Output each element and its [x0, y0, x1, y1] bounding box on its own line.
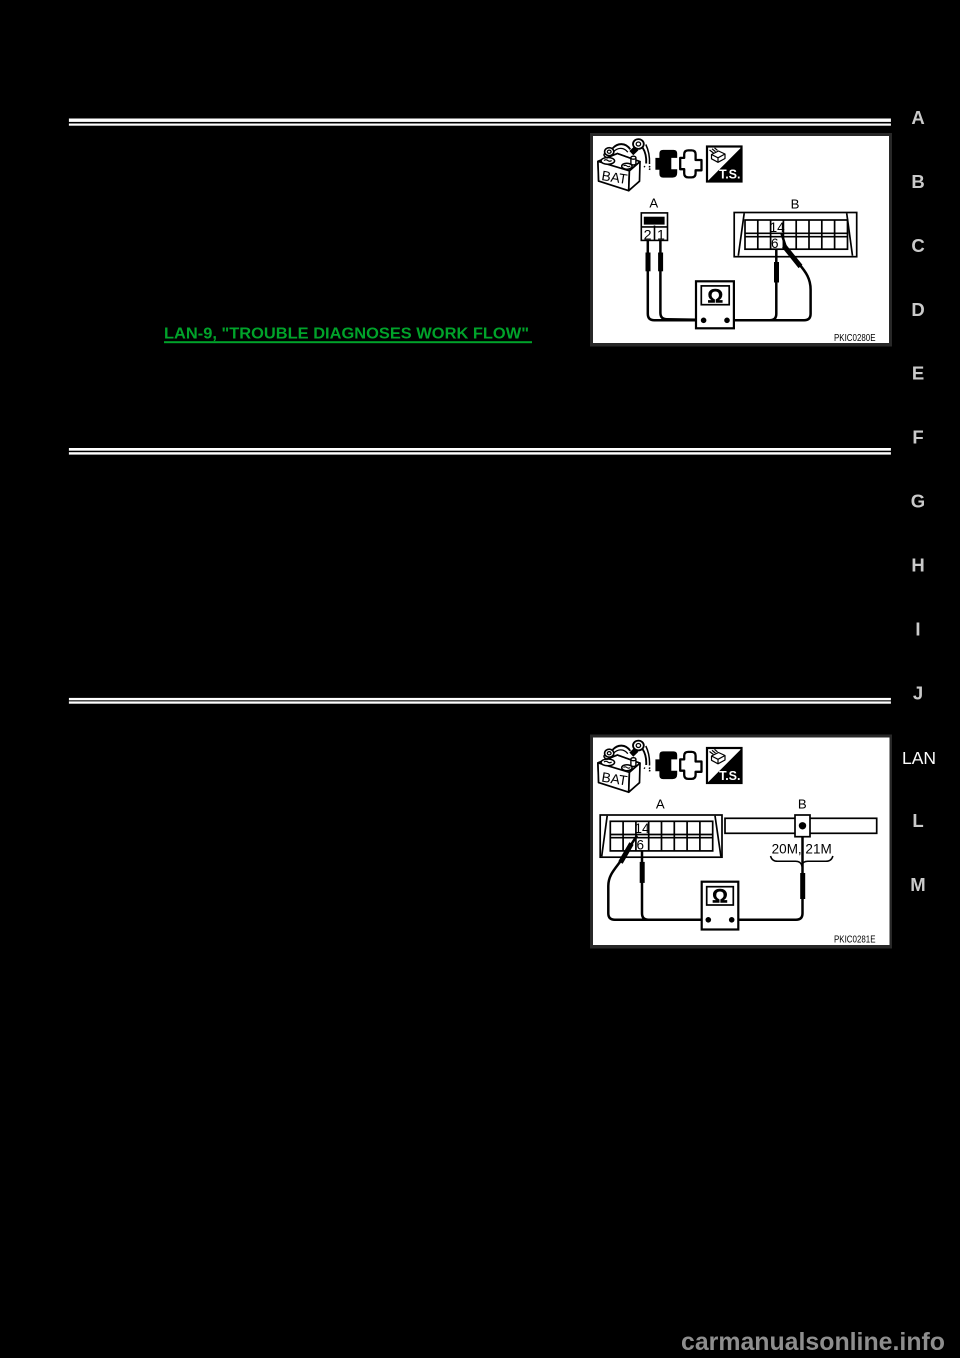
svg-text:E: E [912, 363, 924, 384]
svg-text:M: M [910, 874, 925, 895]
svg-text:C: C [911, 235, 924, 256]
svg-text:H: H [911, 555, 924, 576]
svg-text:L: L [912, 810, 923, 831]
svg-text:carmanualsonline.info: carmanualsonline.info [681, 1328, 945, 1356]
svg-text:T.S.: T.S. [719, 168, 741, 182]
svg-text:6: 6 [771, 236, 779, 251]
svg-text:A: A [911, 107, 924, 128]
svg-text:G: G [911, 491, 925, 512]
svg-text:14: 14 [770, 220, 786, 235]
svg-text:LAN: LAN [902, 748, 936, 768]
svg-text:J: J [913, 682, 923, 703]
svg-text:B: B [798, 796, 807, 811]
svg-text:A: A [656, 796, 665, 811]
svg-text:Ω: Ω [707, 285, 723, 307]
svg-text:PKIC0281E: PKIC0281E [834, 934, 876, 946]
svg-text:Ω: Ω [712, 886, 728, 908]
svg-text:PKIC0280E: PKIC0280E [834, 332, 876, 344]
svg-text:6: 6 [637, 837, 645, 852]
svg-text:14: 14 [634, 821, 650, 836]
svg-text:A: A [649, 196, 658, 211]
svg-text:F: F [912, 427, 923, 448]
svg-text:D: D [911, 299, 924, 320]
svg-text:B: B [791, 196, 800, 211]
svg-text:I: I [915, 618, 920, 639]
svg-text:LAN-9, "TROUBLE DIAGNOSES WORK: LAN-9, "TROUBLE DIAGNOSES WORK FLOW" [164, 325, 529, 342]
svg-text:B: B [911, 171, 924, 192]
